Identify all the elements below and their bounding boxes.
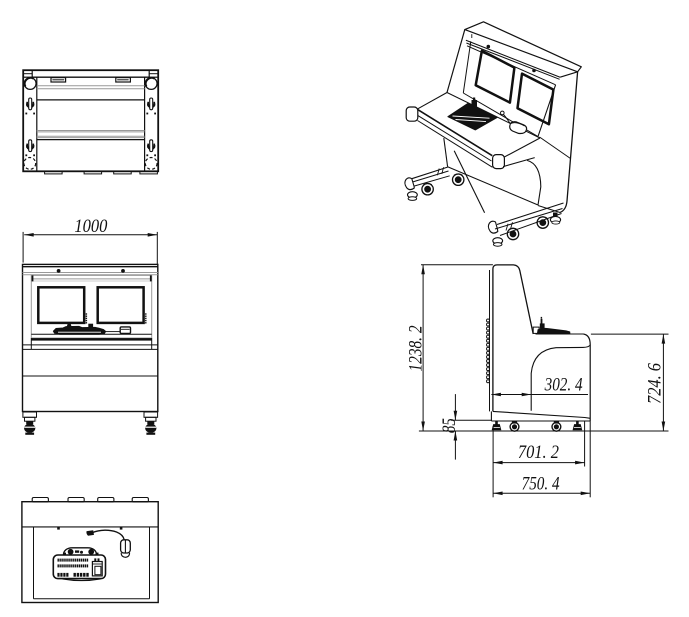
svg-text:85: 85	[439, 418, 460, 433]
svg-text:724. 6: 724. 6	[644, 363, 665, 404]
svg-text:701. 2: 701. 2	[518, 442, 559, 463]
svg-text:1238. 2: 1238. 2	[405, 325, 426, 371]
svg-text:302. 4: 302. 4	[544, 375, 583, 396]
svg-text:750. 4: 750. 4	[522, 473, 560, 494]
svg-text:1000: 1000	[74, 216, 107, 237]
